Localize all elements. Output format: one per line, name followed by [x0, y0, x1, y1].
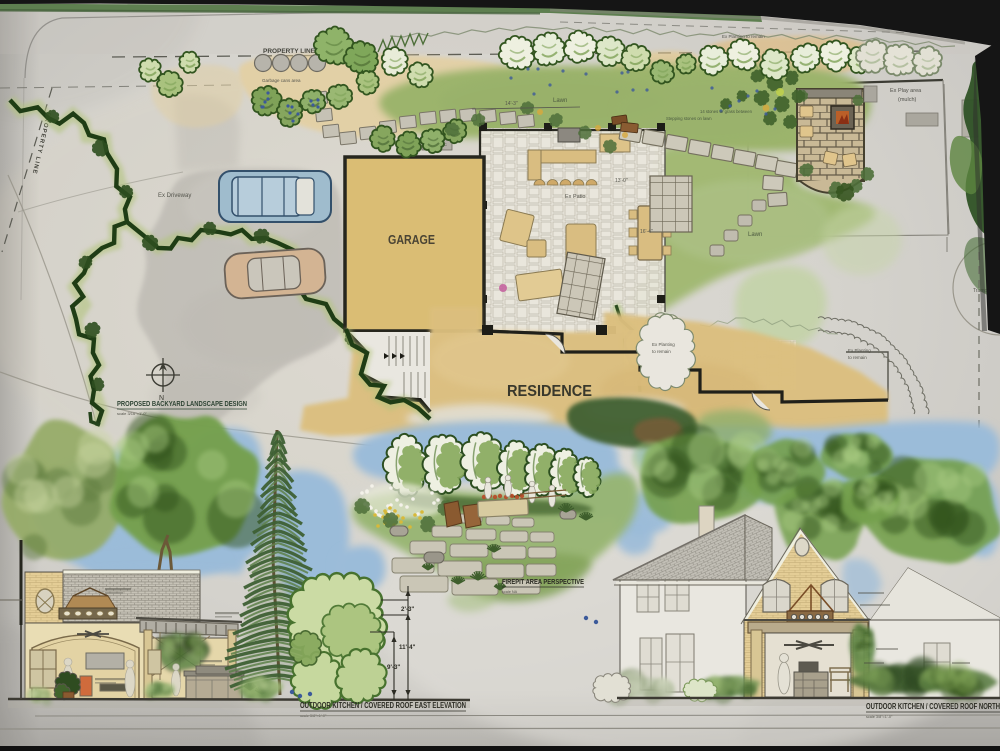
- svg-text:Ex Play area: Ex Play area: [890, 88, 922, 94]
- svg-text:11'-4": 11'-4": [399, 644, 416, 651]
- svg-text:2'-3": 2'-3": [401, 606, 414, 613]
- svg-text:Ex Planting: Ex Planting: [652, 342, 675, 347]
- svg-text:Stepping stones on lawn: Stepping stones on lawn: [666, 116, 712, 121]
- svg-text:14 stones w/ grass between: 14 stones w/ grass between: [700, 109, 753, 114]
- svg-text:13'-0": 13'-0": [615, 178, 628, 184]
- svg-text:Garbage cans area: Garbage cans area: [262, 78, 301, 83]
- svg-text:14'-3": 14'-3": [505, 101, 518, 107]
- svg-text:PROPOSED BACKYARD LANDSCAPE DE: PROPOSED BACKYARD LANDSCAPE DESIGN: [117, 399, 247, 408]
- svg-text:Ex Planting to remain: Ex Planting to remain: [722, 34, 765, 39]
- svg-text:PROPERTY LINE: PROPERTY LINE: [263, 48, 316, 55]
- svg-text:OUTDOOR KITCHEN / COVERED ROOF: OUTDOOR KITCHEN / COVERED ROOF NORTH: [866, 702, 1000, 711]
- svg-text:16'-4": 16'-4": [640, 229, 653, 235]
- svg-text:(mulch): (mulch): [898, 97, 917, 103]
- svg-text:Lawn: Lawn: [748, 232, 762, 238]
- svg-text:OUTDOOR KITCHEN / COVERED ROOF: OUTDOOR KITCHEN / COVERED ROOF EAST ELEV…: [300, 701, 466, 710]
- svg-text:to remain: to remain: [652, 349, 671, 354]
- svg-text:9'-3": 9'-3": [387, 664, 400, 671]
- svg-text:GARAGE: GARAGE: [388, 233, 435, 247]
- svg-text:to remain: to remain: [848, 355, 867, 360]
- svg-text:RESIDENCE: RESIDENCE: [507, 383, 592, 400]
- svg-text:Lawn: Lawn: [553, 98, 567, 104]
- svg-text:scale NA: scale NA: [502, 590, 518, 594]
- svg-text:Ex Patio: Ex Patio: [565, 194, 585, 200]
- svg-text:FIREPIT AREA PERSPECTIVE: FIREPIT AREA PERSPECTIVE: [502, 577, 584, 586]
- svg-text:Ex Driveway: Ex Driveway: [158, 193, 191, 199]
- svg-text:Ex Planting: Ex Planting: [848, 348, 871, 353]
